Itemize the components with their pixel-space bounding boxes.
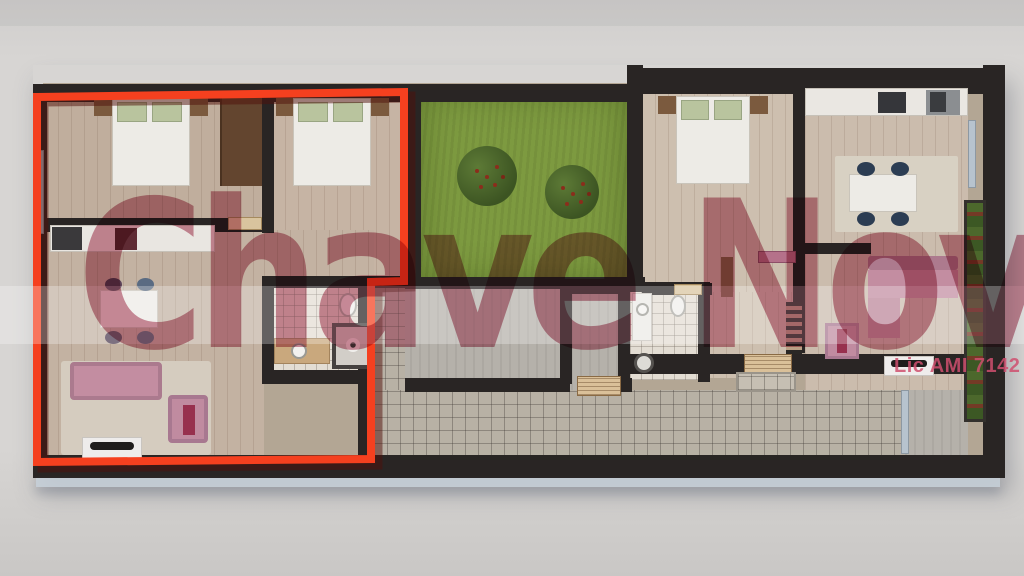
walkway-end-concrete — [905, 390, 968, 457]
outer-wall-left — [33, 84, 47, 478]
tv-1 — [90, 442, 134, 450]
pillow — [714, 100, 742, 120]
pillow — [152, 102, 182, 122]
top-shade-band — [0, 0, 1024, 26]
watermark-text: Chave Nova — [77, 175, 947, 395]
nightstand — [750, 96, 768, 114]
kitchen-sink-2-basin — [930, 92, 946, 112]
license-text: Lic AMI 7142 — [894, 355, 1020, 378]
pillow — [333, 102, 363, 122]
floor-plan-render: Chave Nova Lic AMI 7142 — [0, 0, 1024, 576]
nightstand — [371, 98, 389, 116]
armchair-1-cushion — [183, 405, 195, 435]
pillow — [681, 100, 709, 120]
pillow — [298, 102, 328, 122]
nightstand — [658, 96, 676, 114]
bottom-glass-railing — [36, 478, 1000, 487]
nightstand — [190, 98, 208, 116]
cooktop-2 — [878, 92, 906, 113]
walkway-tiles — [374, 390, 905, 457]
outer-wall-bottom — [33, 455, 1005, 478]
window-left — [36, 150, 44, 234]
patio-door — [901, 390, 909, 454]
nightstand — [276, 98, 293, 116]
nightstand — [94, 98, 112, 116]
pillow — [117, 102, 147, 122]
